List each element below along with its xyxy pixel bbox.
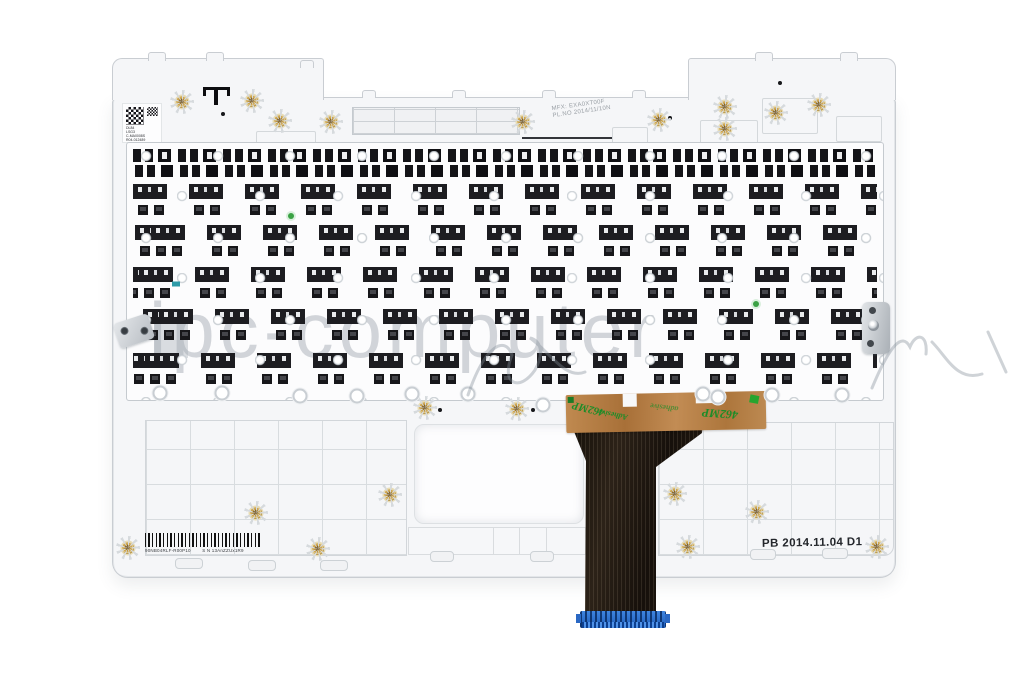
barcode-text-left: 90NB04RLF-R00P10 [145, 548, 191, 553]
screw-hole-icon [869, 307, 876, 314]
palmrest-top-tab-right [688, 58, 896, 100]
teal-mark [172, 282, 180, 287]
qr-label-text: DL84 LSG3 C-MA0008S R04-012489 [126, 126, 160, 142]
qr-code-blocks [147, 107, 158, 116]
connector-ear [576, 614, 581, 623]
barcode [145, 533, 261, 547]
green-qc-dot [288, 213, 294, 219]
printed-underline [522, 137, 612, 139]
t-mold-mark [227, 87, 230, 96]
qr-code-blocks [126, 107, 144, 125]
screw-icon [139, 326, 149, 336]
scribble-marks [440, 320, 1020, 420]
t-mold-mark [203, 87, 206, 96]
lower-tray [408, 527, 586, 555]
palmrest-top-tab-left [112, 58, 324, 100]
connector-ear [665, 614, 670, 623]
barcode-text: 90NB04RLF-R00P10 S N 13AnZZUx1R9 [145, 548, 325, 553]
barcode-text-right: S N 13AnZZUx1R9 [202, 548, 244, 553]
vent-grille [352, 107, 520, 135]
tray-divider [519, 528, 520, 554]
cable-connector [580, 611, 666, 628]
product-photo: MFX: EXA0XT00F PL.NO 2014/11/10N DL84 LS… [0, 0, 1024, 680]
screw-icon [119, 326, 129, 336]
tray-divider [493, 528, 494, 554]
qr-label: DL84 LSG3 C-MA0008S R04-012489 [122, 103, 162, 143]
touchpad-recess [414, 424, 584, 524]
green-qc-dot [753, 301, 759, 307]
tray-divider [546, 528, 547, 554]
t-mold-mark [214, 87, 218, 105]
date-stamp: PB 2014.11.04 D1 [762, 536, 863, 550]
